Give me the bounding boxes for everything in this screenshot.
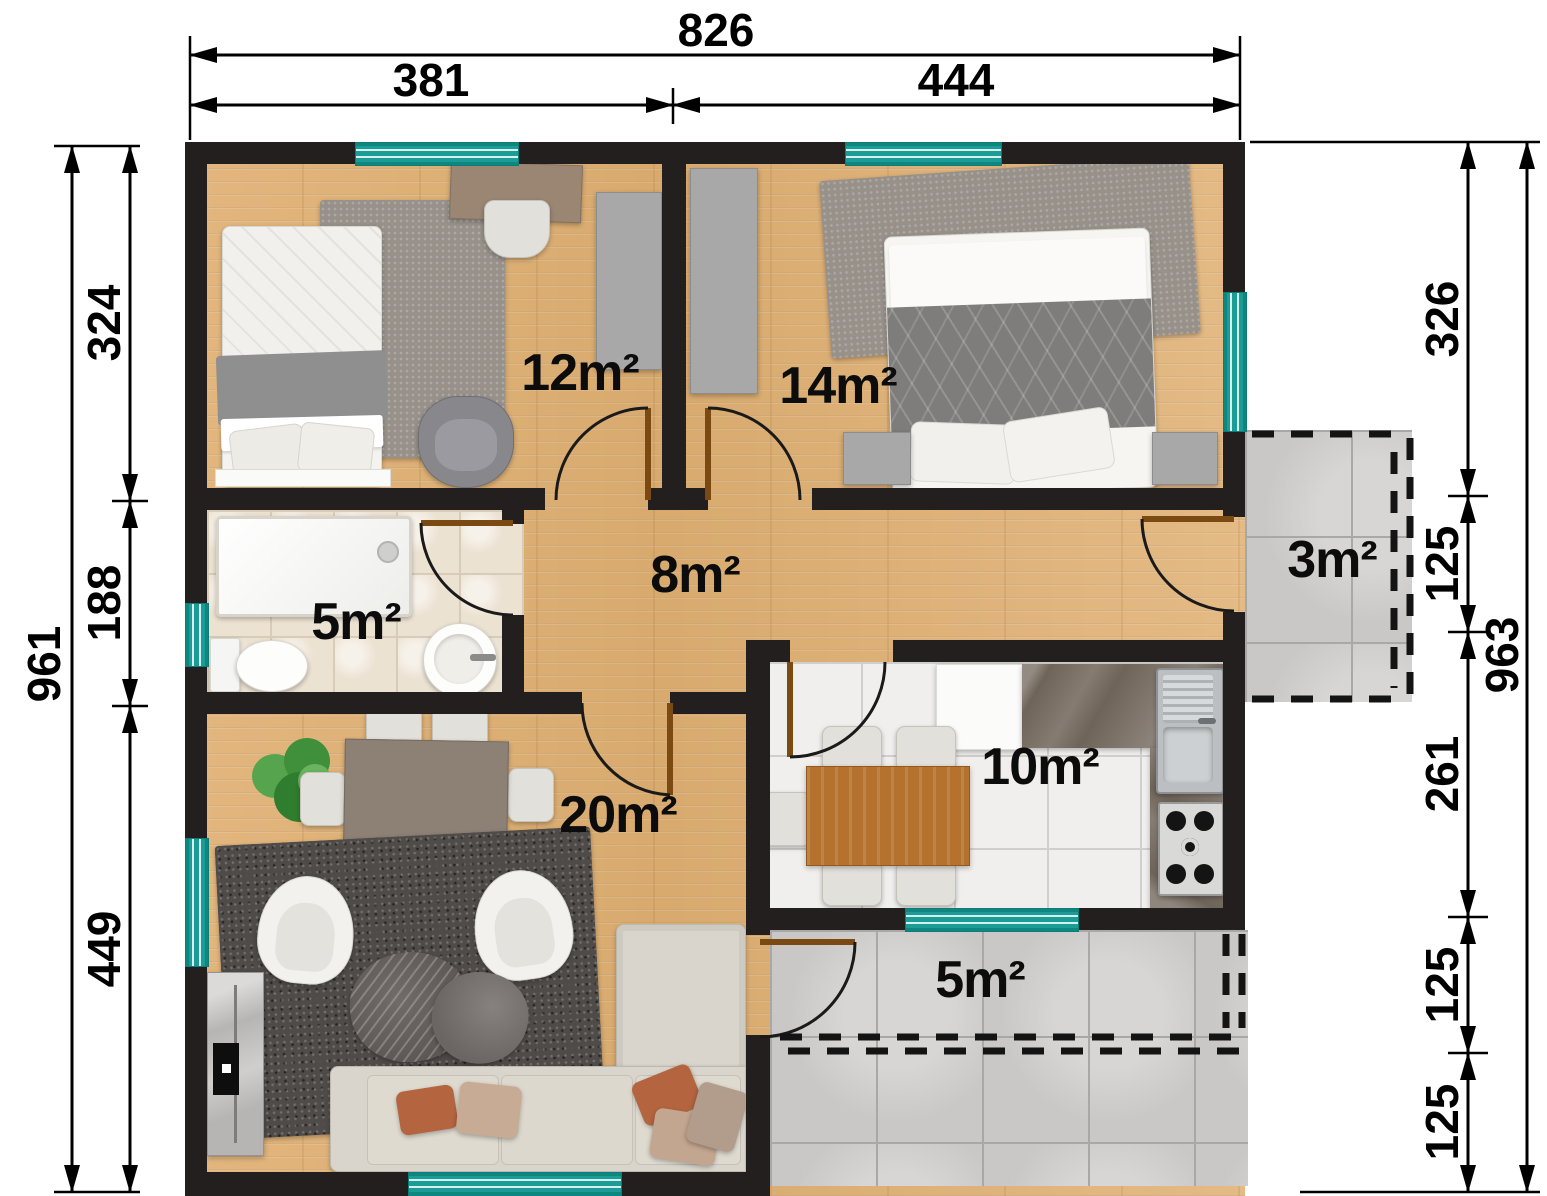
door-arc (708, 408, 800, 500)
plan-annotations (0, 0, 1547, 1196)
door-arc (421, 523, 513, 615)
room-area-label: 3m² (1287, 530, 1376, 590)
dimension-label: 125 (1415, 947, 1469, 1024)
dimension-label: 444 (918, 53, 995, 107)
floor-plan: 12m² 14m² 8m² 5m² 20m² 10m² 3m² 5m² 826 … (0, 0, 1547, 1196)
dimension-label: 261 (1415, 736, 1469, 813)
dimension-label: 125 (1415, 1084, 1469, 1161)
room-area-label: 8m² (650, 545, 739, 605)
dimension-label: 381 (393, 53, 470, 107)
dimension-lines (72, 55, 1527, 1192)
door-arc (790, 662, 885, 757)
room-area-label: 20m² (559, 785, 676, 845)
door-leaves (421, 408, 1234, 942)
dimension-label: 125 (1415, 526, 1469, 603)
room-area-label: 12m² (521, 343, 638, 403)
dimension-label-top-total: 826 (678, 3, 755, 57)
room-area-label: 14m² (779, 356, 896, 416)
dimension-label: 324 (77, 285, 131, 362)
door-arc (556, 408, 648, 500)
dimension-label-left-total: 961 (17, 626, 71, 703)
dimension-label: 449 (77, 911, 131, 988)
dimension-extension-lines (54, 36, 1540, 1192)
door-arc (760, 942, 855, 1037)
door-arc (1142, 519, 1234, 611)
room-area-label: 5m² (935, 950, 1024, 1010)
dimension-label: 326 (1415, 281, 1469, 358)
room-area-label: 5m² (311, 592, 400, 652)
room-area-label: 10m² (981, 737, 1098, 797)
dimension-label: 188 (77, 565, 131, 642)
dimension-label-right-total: 963 (1475, 617, 1529, 694)
door-arc (582, 703, 670, 795)
